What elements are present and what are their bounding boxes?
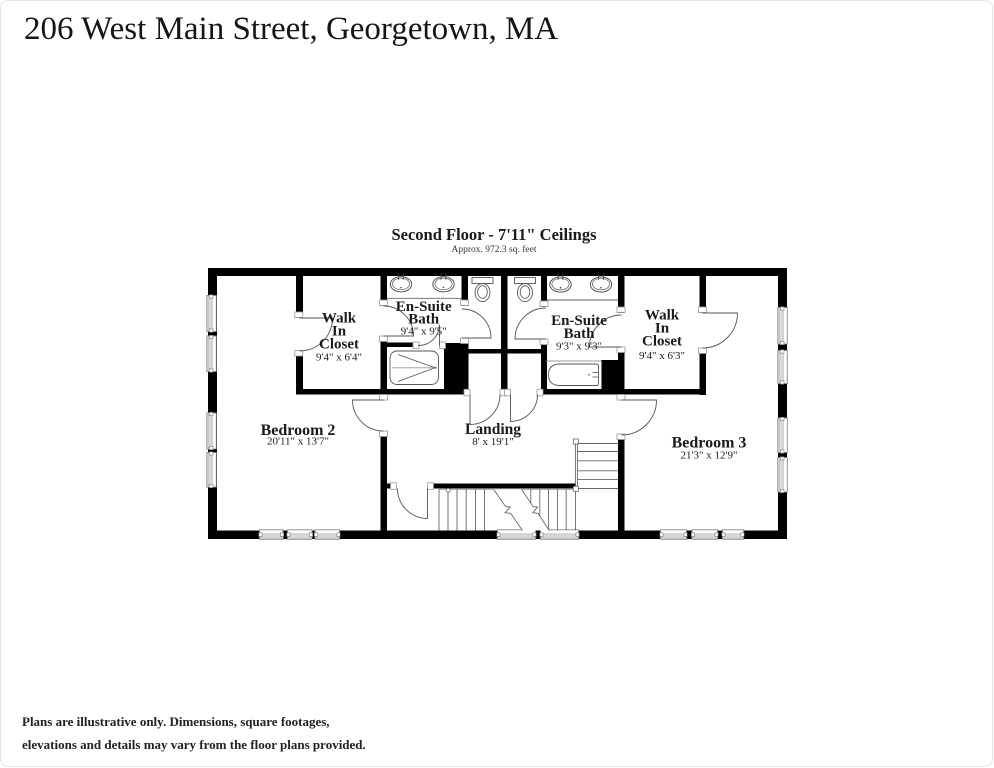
svg-text:Approx. 972.3 sq. feet: Approx. 972.3 sq. feet: [452, 244, 537, 255]
svg-text:Second Floor - 7'11" Ceilings: Second Floor - 7'11" Ceilings: [391, 225, 597, 244]
svg-text:9'4" x 9'5": 9'4" x 9'5": [401, 325, 447, 337]
svg-text:9'4" x 6'4": 9'4" x 6'4": [316, 351, 362, 363]
svg-text:8' x 19'1": 8' x 19'1": [472, 436, 513, 448]
svg-text:20'11" x 13'7": 20'11" x 13'7": [267, 436, 329, 448]
svg-text:Closet: Closet: [642, 333, 682, 349]
svg-text:21'3" x 12'9": 21'3" x 12'9": [681, 450, 738, 462]
svg-text:9'4" x 6'3": 9'4" x 6'3": [639, 350, 685, 362]
svg-text:9'3" x 9'3": 9'3" x 9'3": [556, 340, 602, 352]
svg-text:Closet: Closet: [319, 337, 359, 353]
